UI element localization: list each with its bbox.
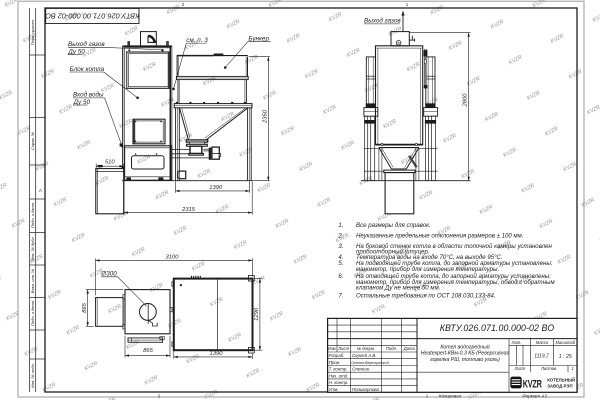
svg-text:2315: 2315 <box>181 207 196 213</box>
svg-text:1390: 1390 <box>210 351 224 357</box>
svg-text:KVZR: KVZR <box>523 378 542 391</box>
svg-text:2.: 2. <box>337 233 343 240</box>
svg-text:1.: 1. <box>338 222 343 229</box>
svg-text:Изм.: Изм. <box>328 346 337 351</box>
svg-text:Разраб.: Разраб. <box>329 353 345 358</box>
svg-text:510: 510 <box>105 159 115 165</box>
svg-text:Поликарпова: Поликарпова <box>352 387 379 392</box>
svg-text:ЗАВОД РЭП: ЗАВОД РЭП <box>547 384 572 389</box>
svg-text:5.: 5. <box>338 260 343 267</box>
svg-text:Утв.: Утв. <box>329 387 339 392</box>
svg-text:7.: 7. <box>338 292 343 299</box>
svg-text:1119,7: 1119,7 <box>534 354 549 360</box>
svg-text:Все размеры для справок.: Все размеры для справок. <box>356 222 431 229</box>
svg-text:Инв. № подл.: Инв. № подл. <box>30 363 35 388</box>
svg-text:Формат А3: Формат А3 <box>522 394 547 399</box>
svg-text:Перв. примен.: Перв. примен. <box>30 19 35 46</box>
svg-text:Котел водогрейный: Котел водогрейный <box>440 343 489 350</box>
svg-text:Листов: Листов <box>540 366 557 371</box>
svg-text:Остальные требования по ОСТ 10: Остальные требования по ОСТ 108.030.133-… <box>356 292 496 299</box>
svg-text:6.: 6. <box>338 273 343 280</box>
svg-text:Инв. № дубл.: Инв. № дубл. <box>30 236 35 261</box>
svg-text:2800: 2800 <box>463 93 469 108</box>
svg-text:горелка РШ, топливо уголь): горелка РШ, топливо уголь) <box>430 357 500 363</box>
svg-text:Лит.: Лит. <box>511 340 522 345</box>
svg-text:1 : 25: 1 : 25 <box>559 354 572 360</box>
svg-text:Справ. №: Справ. № <box>30 131 35 150</box>
svg-text:Выход газов: Выход газов <box>68 40 105 48</box>
svg-text:Неуказанные предельные отклоне: Неуказанные предельные отклонения размер… <box>356 233 524 240</box>
svg-text:1290: 1290 <box>254 307 260 321</box>
svg-text:Т. контр.: Т. контр. <box>329 367 348 372</box>
svg-text:Подп. и дата: Подп. и дата <box>30 202 35 228</box>
svg-text:Дата: Дата <box>403 346 416 351</box>
svg-text:клапаном Ду не менее 50 мм.: клапаном Ду не менее 50 мм. <box>356 284 440 291</box>
svg-text:Выход газов: Выход газов <box>364 17 401 25</box>
svg-text:865: 865 <box>82 302 88 312</box>
svg-text:1390: 1390 <box>209 185 223 191</box>
svg-text:КОТЕЛЬНЫЙ: КОТЕЛЬНЫЙ <box>547 378 575 383</box>
svg-text:Подп.: Подп. <box>386 346 397 351</box>
svg-text:865: 865 <box>143 348 153 354</box>
svg-text:Олечкин: Олечкин <box>352 367 370 372</box>
svg-text:3.: 3. <box>338 243 343 250</box>
svg-text:1: 1 <box>572 366 574 371</box>
svg-text:КВТУ.026.071.00.000-02 ВО: КВТУ.026.071.00.000-02 ВО <box>45 11 139 20</box>
svg-text:Масштаб: Масштаб <box>556 340 576 345</box>
svg-text:Heatexpert-КВм-0,3 КБ (Реверси: Heatexpert-КВм-0,3 КБ (Реверсивная <box>421 351 510 357</box>
svg-text:Сергей А.В.: Сергей А.В. <box>352 353 377 358</box>
svg-text:№ докум.: № докум. <box>357 346 375 351</box>
svg-text:Лист: Лист <box>514 366 526 371</box>
svg-text:Масса: Масса <box>536 340 549 345</box>
svg-text:Пров.: Пров. <box>329 360 341 365</box>
svg-text:Бункер: Бункер <box>248 35 269 42</box>
svg-text:Взам. инв. №: Взам. инв. № <box>30 268 35 293</box>
svg-text:2350: 2350 <box>262 109 268 124</box>
svg-text:Нач. отд.: Нач. отд. <box>329 373 349 378</box>
svg-text:Н. контр.: Н. контр. <box>329 380 349 385</box>
svg-text:Олегов-Верещинский: Олегов-Верещинский <box>351 361 388 365</box>
svg-text:Подп. и дата: Подп. и дата <box>30 300 35 326</box>
svg-text:Лист: Лист <box>337 346 349 351</box>
svg-text:см. п. 3: см. п. 3 <box>186 37 208 44</box>
svg-text:А: А <box>39 188 42 193</box>
svg-text:КВТУ.026.071.00.000-02 ВО: КВТУ.026.071.00.000-02 ВО <box>440 323 555 333</box>
svg-text:Вход воды: Вход воды <box>73 91 104 99</box>
svg-text:манометр, прибор для измерения: манометр, прибор для измерения температу… <box>356 266 499 273</box>
svg-text:Копировал: Копировал <box>439 394 462 399</box>
svg-text:3100: 3100 <box>166 254 180 260</box>
